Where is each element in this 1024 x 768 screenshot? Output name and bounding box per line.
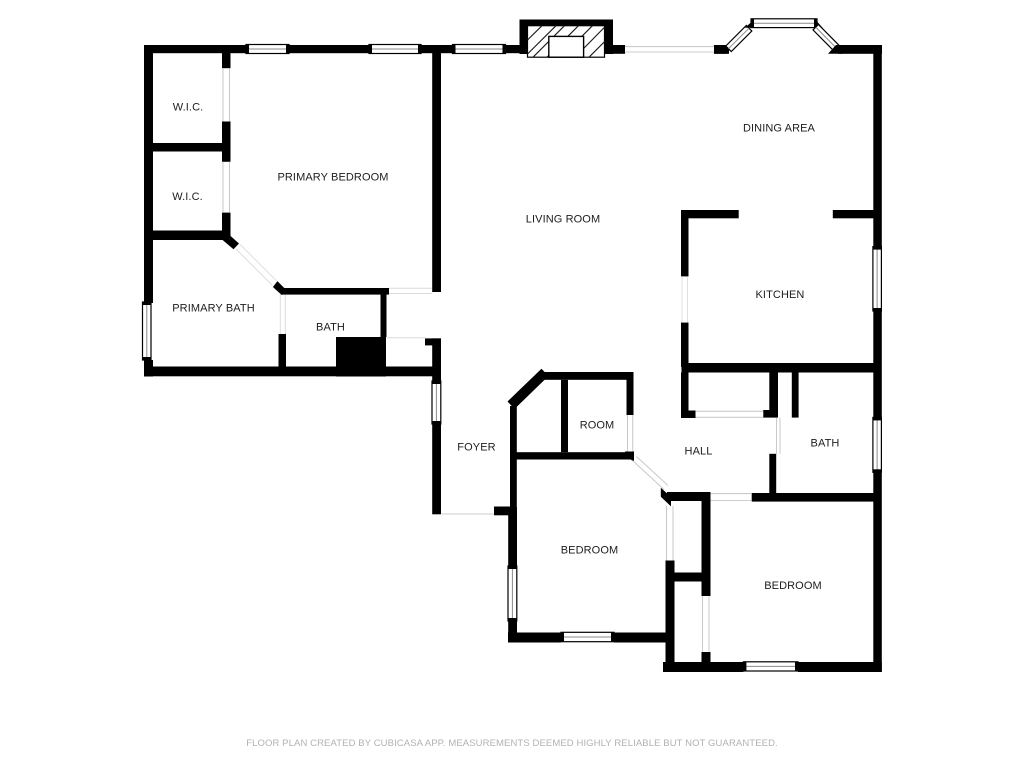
svg-text:BEDROOM: BEDROOM	[561, 545, 619, 557]
svg-text:LIVING ROOM: LIVING ROOM	[526, 214, 600, 226]
svg-text:BATH: BATH	[316, 322, 345, 334]
svg-text:PRIMARY BEDROOM: PRIMARY BEDROOM	[277, 172, 388, 184]
svg-text:W.I.C.: W.I.C.	[172, 191, 203, 203]
svg-text:FLOOR PLAN CREATED BY CUBICASA: FLOOR PLAN CREATED BY CUBICASA APP. MEAS…	[246, 738, 778, 749]
svg-text:PRIMARY BATH: PRIMARY BATH	[172, 303, 255, 315]
svg-text:ROOM: ROOM	[580, 420, 615, 432]
svg-text:DINING AREA: DINING AREA	[743, 123, 816, 135]
svg-text:KITCHEN: KITCHEN	[756, 289, 805, 301]
svg-text:HALL: HALL	[685, 446, 713, 458]
svg-text:FOYER: FOYER	[457, 442, 495, 454]
svg-text:BEDROOM: BEDROOM	[764, 580, 822, 592]
svg-text:BATH: BATH	[811, 438, 840, 450]
svg-text:W.I.C.: W.I.C.	[173, 102, 204, 114]
